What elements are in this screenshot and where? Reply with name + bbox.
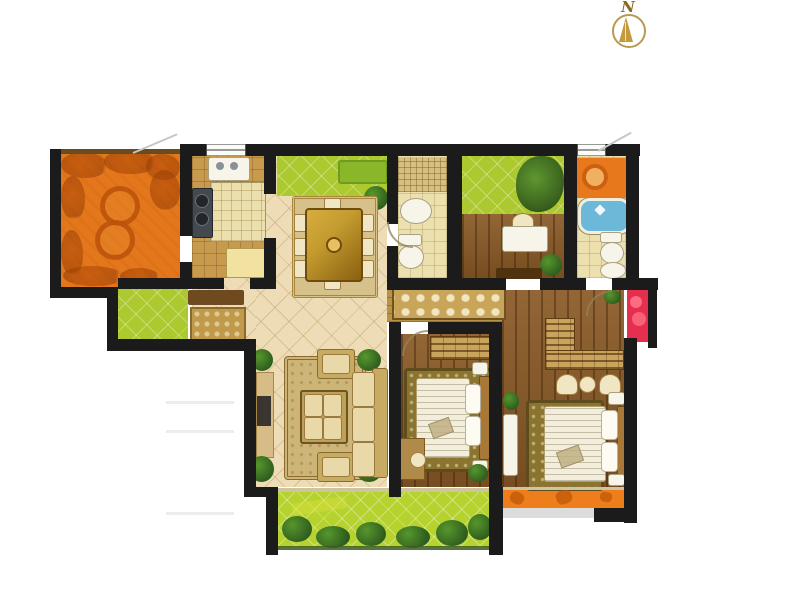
toilet-bowl bbox=[398, 245, 424, 269]
wall-kitchen-terrace-top bbox=[180, 144, 192, 236]
terrace-railing bbox=[50, 149, 185, 154]
wall-master-balcony-bottom bbox=[594, 508, 637, 522]
master-plant bbox=[503, 392, 519, 410]
sliding-door bbox=[278, 488, 489, 492]
study-plant bbox=[540, 254, 562, 276]
tv bbox=[257, 396, 271, 426]
kitchen-counter bbox=[210, 182, 266, 242]
nightstand bbox=[608, 474, 625, 486]
wall-mid-horizontal-b bbox=[540, 278, 586, 290]
balcony-post-left bbox=[266, 487, 278, 555]
dining-bench bbox=[338, 160, 388, 184]
wall-mid-horizontal-a bbox=[387, 278, 506, 290]
wall-kitchen-dining-top bbox=[264, 144, 276, 194]
armchair-cushion bbox=[322, 457, 350, 477]
bathroom-sink bbox=[400, 198, 432, 224]
round-table bbox=[579, 376, 596, 393]
terrace-foliage bbox=[63, 266, 123, 286]
bathroom-sink bbox=[600, 262, 626, 279]
balcony-railing bbox=[278, 546, 489, 550]
wall-terrace-left bbox=[50, 149, 61, 298]
wall-entry-bottom bbox=[107, 339, 254, 351]
wall-kitchen-bottom-right bbox=[250, 278, 276, 289]
bathtub bbox=[578, 198, 631, 234]
study-desk bbox=[502, 226, 548, 252]
wall-living-left bbox=[244, 339, 256, 497]
pillow bbox=[465, 416, 481, 446]
entry-porch-floor bbox=[118, 289, 188, 339]
watermark-line bbox=[166, 512, 234, 515]
wall-bedroom2-right bbox=[489, 322, 502, 487]
wall-right-top bbox=[626, 144, 639, 290]
sofa-cushion bbox=[352, 442, 375, 477]
toilet-bowl bbox=[600, 242, 624, 264]
compass-arrow-highlight bbox=[625, 22, 626, 41]
door-arc bbox=[387, 222, 413, 248]
balcony-shadow bbox=[502, 508, 594, 518]
master-dresser bbox=[503, 414, 518, 476]
kitchen-sink bbox=[208, 157, 250, 181]
terrace-foliage bbox=[61, 176, 85, 220]
terrace-chair bbox=[95, 220, 135, 260]
coffee-table-panel bbox=[304, 394, 323, 417]
floor-plan: N bbox=[0, 0, 800, 611]
wall-kitchen-bottom-left bbox=[180, 278, 224, 289]
balcony-plant bbox=[282, 516, 312, 542]
coffee-table-panel bbox=[323, 394, 342, 417]
terrace-foliage bbox=[61, 152, 107, 178]
sofa-cushion bbox=[352, 407, 375, 442]
desk-chair bbox=[410, 452, 426, 468]
bedroom2-plant bbox=[468, 464, 488, 482]
master-chair bbox=[556, 374, 578, 395]
sink-basin bbox=[216, 162, 224, 170]
wall-bath1-left-top bbox=[387, 156, 398, 224]
fridge bbox=[226, 248, 266, 278]
wall-porch-top bbox=[118, 278, 180, 289]
armchair-cushion bbox=[322, 354, 350, 374]
balcony-plant bbox=[356, 522, 386, 546]
balcony-plant bbox=[316, 526, 350, 548]
pillow bbox=[465, 384, 481, 414]
nightstand bbox=[608, 392, 625, 405]
closet-fixture bbox=[630, 296, 642, 308]
bath-counter-sink bbox=[582, 164, 608, 190]
wall-bedroom2-top bbox=[428, 322, 490, 334]
dining-table-ornament bbox=[326, 237, 342, 253]
terrace-foliage bbox=[150, 170, 180, 210]
wall-bath1-study bbox=[447, 144, 462, 290]
shoe-cabinet bbox=[188, 290, 244, 305]
balcony-post-right bbox=[489, 487, 503, 555]
sofa-cushion bbox=[352, 372, 375, 407]
pillow bbox=[601, 410, 618, 440]
watermark-line bbox=[166, 430, 234, 433]
kitchen-window bbox=[206, 144, 246, 156]
pillow bbox=[601, 442, 618, 472]
compass: N bbox=[606, 0, 650, 52]
wall-closet-right bbox=[648, 290, 657, 348]
nightstand bbox=[472, 362, 488, 375]
wall-mid-horizontal-c bbox=[612, 278, 658, 290]
sliding-door bbox=[502, 487, 624, 490]
wall-master-right bbox=[624, 338, 637, 523]
wardrobe bbox=[545, 318, 575, 354]
shower-area bbox=[398, 158, 447, 192]
wardrobe bbox=[545, 350, 624, 370]
entry-mat bbox=[190, 307, 246, 343]
watermark-line bbox=[166, 401, 234, 404]
stove-burner bbox=[195, 212, 209, 226]
stove-burner bbox=[195, 194, 209, 208]
coffee-table-panel bbox=[304, 417, 323, 440]
wall-bedroom2-left bbox=[389, 322, 401, 497]
balcony-plant bbox=[436, 520, 468, 546]
compass-arrow-icon bbox=[619, 17, 633, 42]
balcony-plant bbox=[396, 526, 430, 548]
sink-basin bbox=[230, 162, 238, 170]
bed-mattress bbox=[544, 406, 606, 482]
closet-fixture bbox=[632, 312, 646, 326]
wall-study-bath2 bbox=[564, 144, 577, 290]
hallway-rug bbox=[392, 286, 506, 320]
coffee-table-panel bbox=[323, 417, 342, 440]
wardrobe bbox=[430, 336, 490, 360]
